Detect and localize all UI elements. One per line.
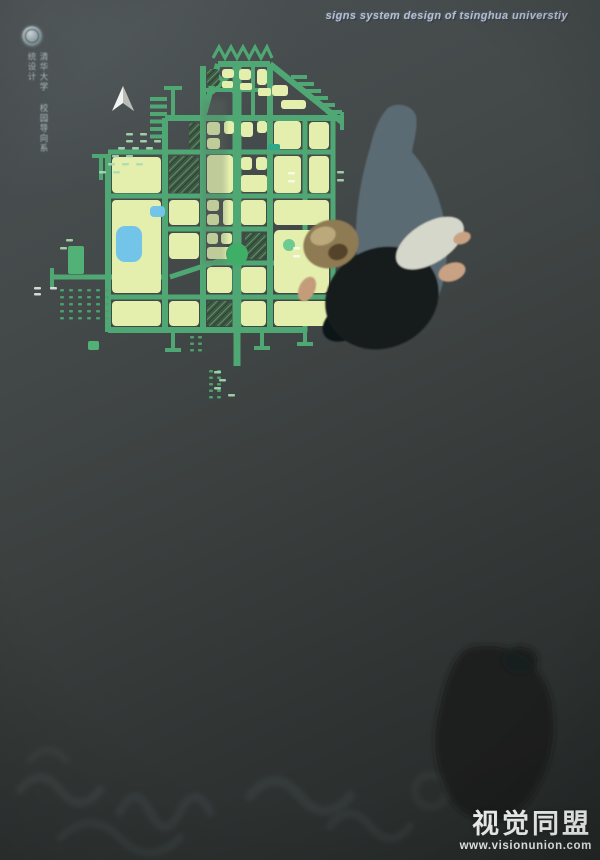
- tree-mark: [209, 390, 213, 393]
- tree-mark: [217, 377, 221, 380]
- tree-mark: [105, 310, 109, 313]
- tree-mark: [87, 289, 91, 292]
- map-top-shape: [112, 157, 161, 193]
- map-top-shape: [207, 69, 219, 86]
- tree-mark: [60, 289, 64, 292]
- atmos-top-shape: [202, 100, 226, 265]
- map-top-shape: [257, 69, 267, 85]
- map-top-shape: [274, 301, 329, 326]
- tree-mark: [69, 317, 73, 320]
- poster-title: signs system design of tsinghua universt…: [326, 10, 568, 22]
- tree-mark: [78, 303, 82, 306]
- tree-mark: [209, 383, 213, 386]
- tree-mark: [60, 310, 64, 313]
- map-top-shape: [312, 96, 328, 100]
- poster: signs system design of tsinghua universt…: [0, 0, 600, 860]
- map-top-shape: [256, 157, 267, 170]
- legend-swatch: [68, 246, 84, 274]
- map-top-shape: [257, 121, 267, 133]
- poster-scene: [0, 0, 600, 860]
- tree-mark: [96, 296, 100, 299]
- tree-mark: [96, 310, 100, 313]
- logo-vertical-text: 清华大学 校园导向系统设计: [25, 52, 49, 162]
- tree-mark: [69, 303, 73, 306]
- map-top-shape: [150, 127, 167, 131]
- map-top-shape: [272, 85, 288, 96]
- map-top-shape: [150, 135, 167, 139]
- map-top-shape: [169, 301, 199, 326]
- map-top-shape: [50, 287, 57, 290]
- map-top-shape: [241, 200, 266, 225]
- map-top-shape: [34, 287, 41, 290]
- map-top-shape: [337, 179, 344, 182]
- map-top-shape: [213, 47, 272, 58]
- map-top-shape: [126, 140, 133, 143]
- map-top-shape: [136, 163, 143, 166]
- tree-mark: [96, 303, 100, 306]
- map-top-shape: [239, 69, 251, 80]
- map-top-shape: [288, 172, 295, 175]
- map-top-shape: [298, 82, 314, 86]
- map-top-shape: [207, 301, 232, 326]
- tree-mark: [190, 343, 194, 346]
- tree-mark: [105, 317, 109, 320]
- tree-mark: [87, 310, 91, 313]
- map-top-shape: [108, 163, 115, 166]
- map-top-shape: [228, 394, 235, 397]
- map-top-shape: [241, 301, 266, 326]
- map-top-shape: [219, 379, 226, 382]
- tree-mark: [69, 310, 73, 313]
- ghost-glyphs-shape: [30, 750, 66, 760]
- map-top-shape: [214, 371, 221, 374]
- lake: [150, 206, 165, 217]
- tree-mark: [87, 296, 91, 299]
- map-top-shape: [140, 140, 147, 143]
- ghost-glyphs-shape: [250, 781, 350, 811]
- tree-mark: [78, 296, 82, 299]
- map-top-shape: [112, 301, 161, 326]
- map-top-shape: [274, 200, 329, 225]
- tree-mark: [78, 310, 82, 313]
- map-top-shape: [245, 233, 266, 259]
- map-top-shape: [66, 239, 73, 242]
- map-top-shape: [319, 103, 335, 107]
- watermark-brand: 视觉同盟: [460, 811, 592, 838]
- map-top-shape: [154, 140, 161, 143]
- map-top-shape: [60, 247, 67, 250]
- tree-mark: [105, 296, 109, 299]
- tree-mark: [78, 317, 82, 320]
- tsinghua-seal-icon: [22, 26, 42, 46]
- map-top-shape: [309, 156, 329, 193]
- tree-mark: [60, 317, 64, 320]
- map-top-shape: [241, 175, 267, 192]
- tree-mark: [198, 336, 202, 339]
- silhouette-bottom-right-shape: [435, 645, 554, 820]
- ghost-glyphs-shape: [330, 814, 410, 839]
- ghost-glyphs-shape: [20, 778, 100, 803]
- map-top-shape: [222, 69, 234, 78]
- tree-mark: [217, 383, 221, 386]
- map-top: [34, 47, 350, 399]
- watermark: 视觉同盟 www.visionunion.com: [460, 811, 592, 852]
- tree-mark: [87, 303, 91, 306]
- map-top-shape: [112, 155, 119, 158]
- map-top-shape: [150, 97, 167, 101]
- map-top-shape: [293, 255, 300, 258]
- tree-mark: [96, 289, 100, 292]
- map-top-shape: [169, 233, 199, 259]
- tree-mark: [60, 296, 64, 299]
- tree-mark: [105, 289, 109, 292]
- tree-mark: [60, 303, 64, 306]
- map-top-shape: [207, 267, 232, 293]
- map-top-shape: [140, 133, 147, 136]
- map-top-shape: [241, 267, 266, 293]
- map-top-shape: [113, 171, 120, 174]
- tree-mark: [209, 396, 213, 399]
- ghost-glyphs: [20, 750, 447, 853]
- map-top-shape: [258, 88, 271, 96]
- tree-mark: [209, 377, 213, 380]
- map-top-shape: [305, 89, 321, 93]
- roundabout: [226, 243, 248, 265]
- watermark-url: www.visionunion.com: [460, 840, 592, 852]
- ghost-glyphs-shape: [120, 797, 210, 827]
- map-top-shape: [189, 123, 200, 149]
- tree-mark: [217, 390, 221, 393]
- map-top-shape: [146, 147, 153, 150]
- map-top-shape: [150, 105, 167, 109]
- map-top-shape: [274, 156, 301, 193]
- silhouette-bottom-right: [435, 645, 554, 820]
- map-top-shape: [118, 147, 125, 150]
- map-top-shape: [293, 247, 300, 250]
- map-top-shape: [99, 171, 106, 174]
- map-top-shape: [291, 75, 307, 79]
- map-top-shape: [288, 180, 295, 183]
- map-top-shape: [34, 293, 41, 296]
- tree-mark: [105, 303, 109, 306]
- lake: [116, 226, 142, 262]
- map-top-shape: [169, 200, 199, 225]
- tree-mark: [198, 343, 202, 346]
- tree-mark: [217, 396, 221, 399]
- tree-mark: [190, 336, 194, 339]
- tree-mark: [198, 349, 202, 352]
- tree-mark: [69, 296, 73, 299]
- map-top-shape: [240, 83, 252, 90]
- map-top-shape: [150, 112, 167, 116]
- map-top-shape: [88, 341, 99, 350]
- map-top-shape: [268, 144, 280, 150]
- map-top-shape: [150, 120, 167, 124]
- map-top-shape: [337, 171, 344, 174]
- silhouette-bottom-right-shape: [502, 646, 538, 674]
- tree-mark: [190, 349, 194, 352]
- tree-mark: [209, 370, 213, 373]
- map-top-shape: [241, 122, 253, 137]
- north-arrow-icon: [123, 86, 134, 111]
- map-top-shape: [214, 387, 221, 390]
- map-top-shape: [241, 157, 252, 170]
- map-top-shape: [122, 163, 129, 166]
- tree-mark: [96, 317, 100, 320]
- map-top-shape: [281, 100, 306, 109]
- map-top-shape: [126, 133, 133, 136]
- tree-mark: [87, 317, 91, 320]
- map-top-shape: [309, 122, 329, 149]
- tree-mark: [69, 289, 73, 292]
- map-top-shape: [126, 155, 133, 158]
- atmos-top: [202, 100, 226, 265]
- map-top-shape: [326, 110, 342, 114]
- map-top-shape: [132, 147, 139, 150]
- tree-mark: [78, 289, 82, 292]
- map-top-shape: [283, 239, 295, 251]
- map-top-shape: [222, 81, 233, 88]
- map-top-shape: [169, 156, 199, 193]
